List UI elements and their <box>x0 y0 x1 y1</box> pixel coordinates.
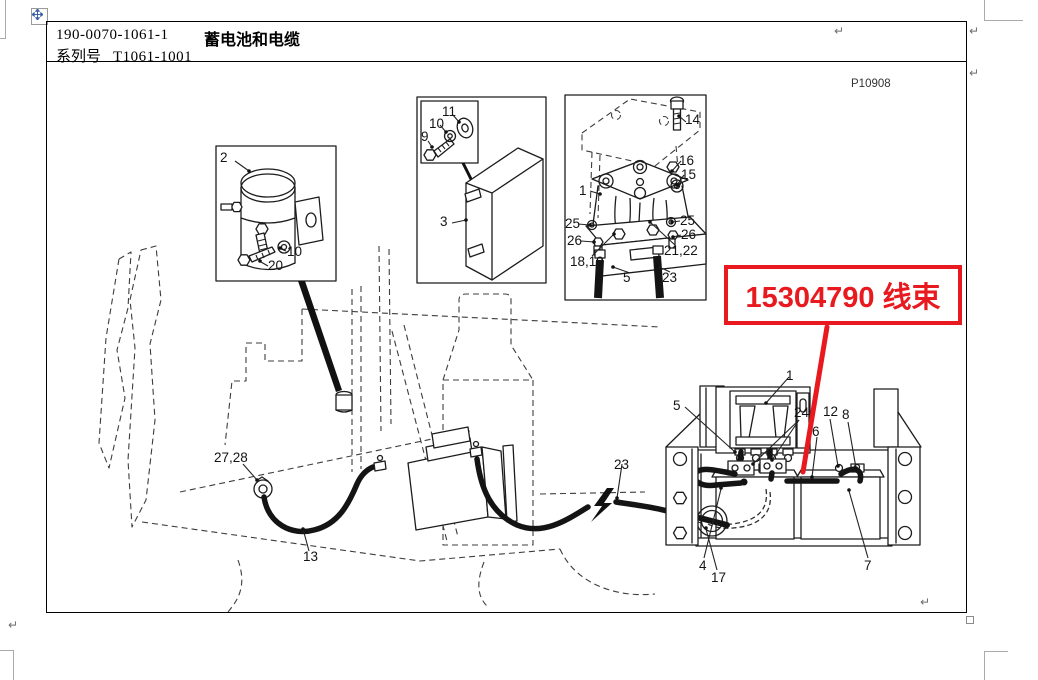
paragraph-return-mark: ↵ <box>834 24 844 38</box>
mark-layer: ↵↵↵↵↵ <box>0 0 1038 680</box>
paragraph-return-mark: ↵ <box>920 595 930 609</box>
document-page: 190-0070-1061-1 蓄电池和电缆 系列号T1061-1001 P10… <box>0 0 1038 680</box>
paragraph-return-mark: ↵ <box>969 66 979 80</box>
paragraph-return-mark: ↵ <box>8 618 18 632</box>
paragraph-return-mark: ↵ <box>969 24 979 38</box>
